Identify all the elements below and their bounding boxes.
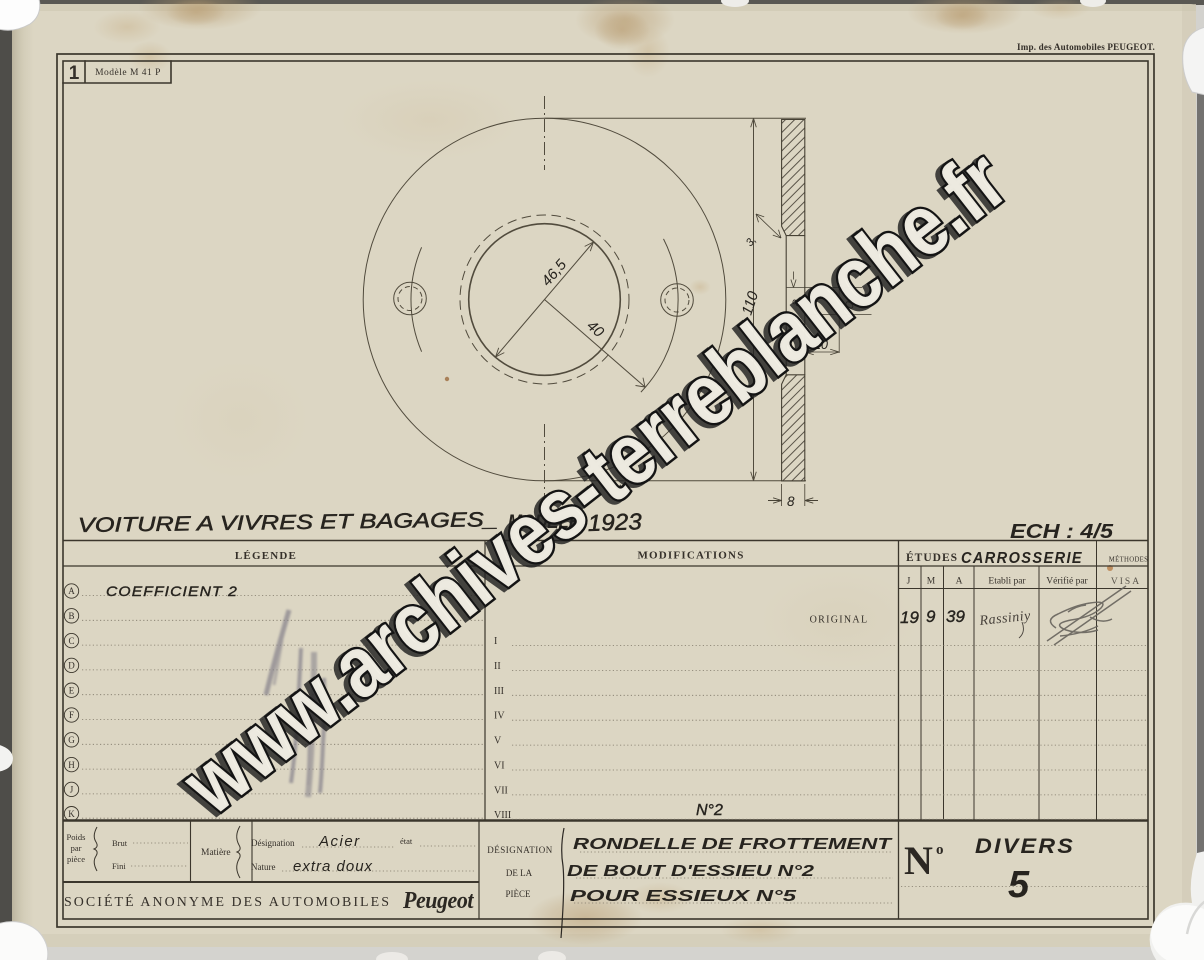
svg-text:ÉTUDES: ÉTUDES xyxy=(906,550,958,564)
svg-text:IV: IV xyxy=(494,711,505,722)
svg-text:B: B xyxy=(68,611,74,621)
svg-text:E: E xyxy=(69,685,75,695)
svg-text:J: J xyxy=(907,577,911,587)
svg-text:Désignation: Désignation xyxy=(251,838,295,848)
svg-text:F: F xyxy=(69,710,74,720)
svg-text:Peugeot: Peugeot xyxy=(402,888,475,914)
svg-text:extra doux: extra doux xyxy=(293,858,373,875)
svg-text:Matière: Matière xyxy=(201,848,231,858)
svg-text:V: V xyxy=(494,736,502,747)
svg-text:J: J xyxy=(70,785,74,795)
svg-text:K: K xyxy=(68,809,75,819)
svg-text:A: A xyxy=(956,577,963,587)
svg-text:H: H xyxy=(68,760,75,770)
svg-text:DE LA: DE LA xyxy=(506,868,533,878)
svg-text:M: M xyxy=(927,577,936,587)
svg-text:POUR ESSIEUX N°5: POUR ESSIEUX N°5 xyxy=(570,888,797,905)
svg-text:par: par xyxy=(71,843,82,853)
svg-text:Imp. des Automobiles PEUGEOT.: Imp. des Automobiles PEUGEOT. xyxy=(1017,43,1155,53)
svg-text:o: o xyxy=(936,842,944,858)
svg-text:CARROSSERIE: CARROSSERIE xyxy=(961,550,1083,567)
svg-text:LÉGENDE: LÉGENDE xyxy=(235,550,297,562)
svg-text:Brut: Brut xyxy=(112,838,128,848)
svg-text:Acier: Acier xyxy=(318,833,361,850)
svg-text:D: D xyxy=(68,661,75,671)
svg-text:Fini: Fini xyxy=(112,861,126,871)
svg-text:Nature: Nature xyxy=(251,862,276,872)
svg-text:5: 5 xyxy=(1008,864,1030,906)
svg-text:I: I xyxy=(494,636,497,647)
svg-text:8: 8 xyxy=(787,494,795,509)
svg-text:19: 19 xyxy=(900,608,919,627)
svg-text:MODIFICATIONS: MODIFICATIONS xyxy=(637,550,744,562)
svg-text:III: III xyxy=(494,686,504,697)
svg-text:39: 39 xyxy=(946,607,965,626)
svg-text:II: II xyxy=(494,661,501,672)
svg-text:DE BOUT D'ESSIEU N°2: DE BOUT D'ESSIEU N°2 xyxy=(567,863,815,880)
svg-text:pièce: pièce xyxy=(67,854,85,864)
svg-text:VISA: VISA xyxy=(1111,577,1141,587)
svg-text:Modèle M 41 P: Modèle M 41 P xyxy=(95,68,161,78)
svg-text:DÉSIGNATION: DÉSIGNATION xyxy=(487,845,553,855)
svg-text:C: C xyxy=(68,636,74,646)
svg-text:PIÈCE: PIÈCE xyxy=(505,889,531,899)
svg-text:COEFFICIENT 2: COEFFICIENT 2 xyxy=(106,583,238,599)
svg-text:N°2: N°2 xyxy=(696,802,723,819)
svg-text:état: état xyxy=(400,836,413,846)
svg-text:MÉTHODES: MÉTHODES xyxy=(1109,556,1148,564)
svg-text:VII: VII xyxy=(494,785,508,796)
svg-text:VI: VI xyxy=(494,761,505,772)
svg-text:9: 9 xyxy=(926,607,936,626)
svg-text:Poids: Poids xyxy=(67,832,86,842)
svg-text:Vérifié par: Vérifié par xyxy=(1046,576,1088,587)
svg-text:Etabli par: Etabli par xyxy=(988,577,1026,587)
svg-text:ECH : 4/5: ECH : 4/5 xyxy=(1010,521,1114,543)
svg-text:A: A xyxy=(68,586,75,596)
svg-text:SOCIÉTÉ ANONYME DES AUTOMOBILE: SOCIÉTÉ ANONYME DES AUTOMOBILES xyxy=(64,894,391,909)
svg-text:G: G xyxy=(68,735,75,745)
svg-text:VIII: VIII xyxy=(494,810,511,821)
svg-text:DIVERS: DIVERS xyxy=(975,835,1075,858)
svg-text:RONDELLE DE FROTTEMENT: RONDELLE DE FROTTEMENT xyxy=(573,836,893,853)
svg-text:ORIGINAL: ORIGINAL xyxy=(810,615,869,626)
svg-text:1: 1 xyxy=(69,63,80,84)
svg-text:N: N xyxy=(904,838,933,883)
